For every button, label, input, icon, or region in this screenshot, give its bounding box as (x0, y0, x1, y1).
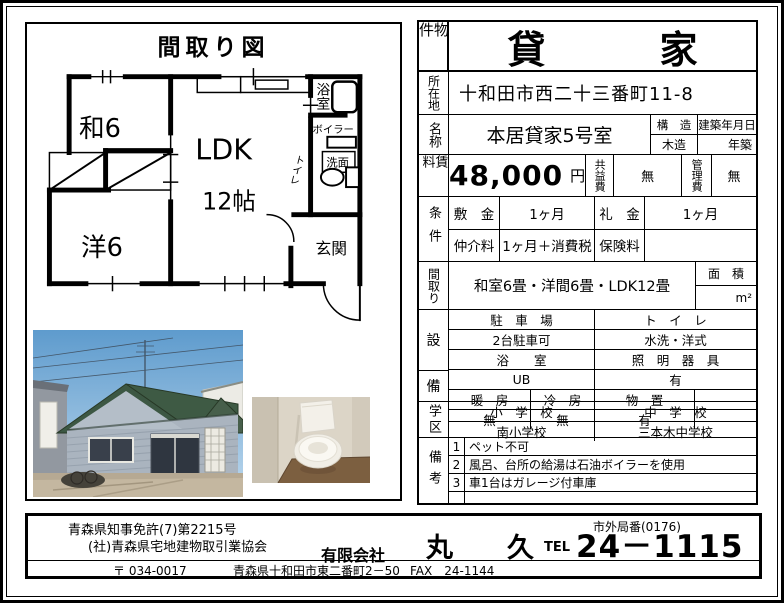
name-value: 本居貸家5号室 (449, 115, 651, 154)
rent-value-cell: 48,000 円 (449, 155, 586, 196)
agent-fee-value: 1ヶ月＋消費税 (500, 230, 595, 262)
rent-label: 賃料 (419, 155, 449, 196)
mgmt-fee-value: 無 (712, 155, 756, 196)
rent-unit: 円 (570, 165, 585, 186)
row-layout: 間取り 和室6畳・洋間6畳・LDK12畳 面 積 m² (419, 262, 756, 310)
room-label-washstand: 洗面 (326, 155, 349, 169)
toilet-label: ト イ レ (595, 310, 756, 329)
row-notes: 備考 1 ペット不可 2 風呂、台所の給湯は石油ボイラーを使用 3 車1台はガレ… (419, 438, 756, 503)
row-name: 名称 本居貸家5号室 構 造 建築年月日 木造 年築 (419, 115, 756, 155)
row-location: 所在地 十和田市西二十三番町11-8 (419, 72, 756, 115)
structure-block: 構 造 建築年月日 木造 年築 (651, 115, 756, 154)
company-address: 青森県十和田市東二番町2－50 (233, 562, 400, 579)
room-label-washitsu: 和6 (79, 114, 121, 144)
room-label-boiler: ボイラー (313, 124, 354, 136)
key-money-value: 1ヶ月 (645, 197, 756, 229)
note-number: 1 (449, 438, 465, 455)
equipment-label-upper: 設 (419, 310, 448, 371)
note-row: 2 風呂、台所の給湯は石油ボイラーを使用 (449, 456, 756, 474)
house-exterior-photo (33, 330, 243, 497)
lighting-label: 照 明 器 具 (595, 350, 756, 369)
toilet-value: 水洗・洋式 (595, 330, 756, 349)
note-number (449, 492, 465, 503)
association-name: (社)青森県宅地建物取引業協会 (88, 536, 267, 555)
elementary-label: 小 学 校 (449, 402, 595, 421)
rental-flyer: 間取り図 (0, 0, 784, 603)
school-label: 学区 (419, 402, 449, 437)
note-row: 1 ペット不可 (449, 438, 756, 456)
room-label-western: 洋6 (81, 233, 123, 263)
property-info-table: 物件 貸 家 所在地 十和田市西二十三番町11-8 名称 本居貸家5号室 構 造… (417, 20, 758, 505)
common-fee-label: 共益費 (586, 155, 614, 196)
insurance-value (645, 230, 756, 262)
note-row (449, 492, 756, 503)
insurance-label: 保険料 (595, 230, 645, 262)
room-label-toilet: トイレ (286, 153, 305, 186)
deposit-value: 1ヶ月 (500, 197, 595, 229)
deposit-label: 敷 金 (449, 197, 500, 229)
postal-code: 〒 034-0017 (113, 562, 187, 579)
built-value: 年築 (698, 135, 756, 154)
property-type-label: 物件 (419, 22, 449, 70)
note-text: ペット不可 (465, 438, 756, 455)
layout-value: 和室6畳・洋間6畳・LDK12畳 (449, 262, 696, 309)
area-label: 面 積 (696, 262, 756, 286)
parking-label: 駐 車 場 (449, 310, 595, 329)
row-school-district: 学区 小 学 校 中 学 校 南小学校 三本木中学校 (419, 402, 756, 438)
footer-divider (28, 560, 759, 561)
floorplan-drawing: 和6 洋6 LDK 12帖 浴室 ボイラー 洗面 トイレ 玄関 (28, 56, 401, 328)
toilet-photo (252, 397, 370, 483)
bath-label: 浴 室 (449, 350, 595, 369)
fax-number: FAX 24-1144 (410, 562, 494, 579)
room-label-ldk: LDK (195, 132, 253, 166)
junior-label: 中 学 校 (595, 402, 756, 421)
note-text: 風呂、台所の給湯は石油ボイラーを使用 (465, 456, 756, 473)
parking-value: 2台駐車可 (449, 330, 595, 349)
room-label-bath: 浴室 (313, 83, 330, 111)
row-rent: 賃料 48,000 円 共益費 無 管理費 無 (419, 155, 756, 197)
notes-label: 備考 (419, 438, 449, 503)
name-label: 名称 (419, 115, 449, 154)
floorplan-panel: 間取り図 (25, 22, 402, 501)
row-property-type: 物件 貸 家 (419, 22, 756, 72)
tel-label: TEL (544, 540, 570, 555)
row-equipment: 設 備 駐 車 場 ト イ レ 2台駐車可 水洗・洋式 浴 室 照 明 器 具 … (419, 310, 756, 402)
note-number: 2 (449, 456, 465, 473)
area-unit: m² (696, 286, 756, 309)
note-text: 車1台はガレージ付車庫 (465, 474, 756, 491)
agent-fee-label: 仲介料 (449, 230, 500, 262)
location-label: 所在地 (419, 72, 449, 114)
row-terms: 条件 敷 金 1ヶ月 礼 金 1ヶ月 仲介料 1ヶ月＋消費税 保険料 (419, 197, 756, 262)
room-label-ldk-size: 12帖 (202, 188, 256, 216)
note-text (465, 492, 756, 503)
built-label: 建築年月日 (698, 115, 756, 134)
equipment-label-lower: 備 (419, 371, 448, 401)
rent-amount: 48,000 (449, 159, 563, 192)
agency-footer: 青森県知事免許(7)第2215号 (社)青森県宅地建物取引業協会 市外局番(01… (25, 513, 762, 579)
layout-label: 間取り (419, 262, 449, 309)
room-label-entrance: 玄関 (316, 239, 348, 258)
structure-value: 木造 (651, 135, 698, 154)
note-row: 3 車1台はガレージ付車庫 (449, 474, 756, 492)
location-value: 十和田市西二十三番町11-8 (449, 72, 756, 114)
structure-label: 構 造 (651, 115, 698, 134)
bath-value: UB (449, 370, 595, 389)
property-type-value: 貸 家 (449, 22, 756, 70)
lighting-value: 有 (595, 370, 756, 389)
note-number: 3 (449, 474, 465, 491)
common-fee-value: 無 (614, 155, 682, 196)
mgmt-fee-label: 管理費 (682, 155, 712, 196)
key-money-label: 礼 金 (595, 197, 645, 229)
terms-label: 条件 (419, 197, 449, 261)
area-block: 面 積 m² (696, 262, 756, 309)
